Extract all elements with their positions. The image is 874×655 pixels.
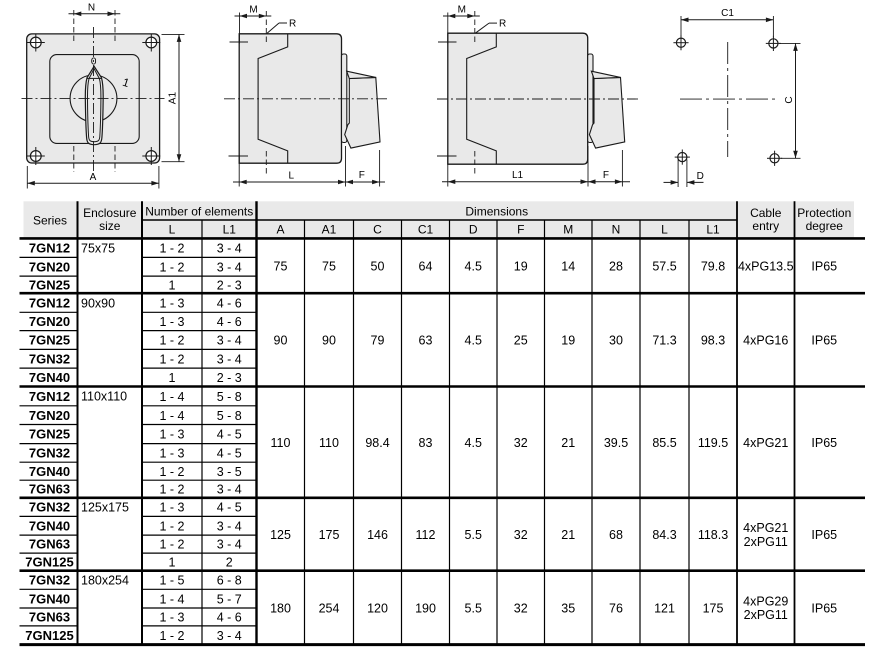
svg-text:A1: A1 [168,92,179,105]
svg-text:7GN20: 7GN20 [29,408,70,423]
svg-text:L: L [289,171,295,182]
svg-text:7GN25: 7GN25 [29,427,70,442]
svg-text:39.5: 39.5 [604,436,628,450]
svg-text:120: 120 [367,601,388,615]
svg-text:1 - 3: 1 - 3 [159,447,184,461]
svg-text:1 - 2: 1 - 2 [159,260,184,274]
svg-text:size: size [99,219,121,233]
svg-text:3 - 4: 3 - 4 [217,483,242,497]
svg-text:7GN40: 7GN40 [29,464,70,479]
svg-text:1: 1 [169,371,176,385]
svg-text:R: R [499,18,506,29]
svg-text:7GN125: 7GN125 [25,628,73,643]
svg-text:32: 32 [514,528,528,542]
svg-text:7GN12: 7GN12 [29,389,70,404]
svg-text:1 - 2: 1 - 2 [159,352,184,366]
svg-text:5 - 8: 5 - 8 [217,390,242,404]
svg-text:IP65: IP65 [811,528,837,542]
svg-text:L1: L1 [512,170,524,181]
svg-text:83: 83 [419,436,433,450]
svg-text:7GN40: 7GN40 [29,518,70,533]
svg-text:5 - 8: 5 - 8 [217,409,242,423]
svg-text:5.5: 5.5 [465,528,482,542]
svg-text:75x75: 75x75 [81,241,115,255]
svg-text:4 - 6: 4 - 6 [217,611,242,625]
svg-text:1 - 2: 1 - 2 [159,538,184,552]
svg-text:90x90: 90x90 [81,296,115,310]
svg-text:190: 190 [415,601,436,615]
svg-text:4xPG21: 4xPG21 [743,436,788,450]
svg-text:35: 35 [561,601,575,615]
svg-text:A: A [90,172,97,183]
svg-text:90: 90 [274,333,288,347]
svg-text:7GN32: 7GN32 [29,446,70,461]
svg-text:50: 50 [371,259,385,273]
svg-text:IP65: IP65 [811,333,837,347]
svg-text:4.5: 4.5 [465,333,482,347]
svg-text:L: L [661,223,668,237]
svg-text:1 - 3: 1 - 3 [159,315,184,329]
svg-text:146: 146 [367,528,388,542]
svg-text:C1: C1 [418,223,434,237]
svg-text:90: 90 [322,333,336,347]
svg-text:118.3: 118.3 [698,528,728,542]
svg-text:5 - 7: 5 - 7 [217,592,242,606]
svg-text:3 - 4: 3 - 4 [217,352,242,366]
svg-text:1: 1 [169,556,176,570]
svg-text:2xPG11: 2xPG11 [744,608,788,622]
svg-text:F: F [359,170,365,181]
svg-text:2: 2 [226,556,233,570]
svg-text:1 - 3: 1 - 3 [159,296,184,310]
svg-text:7GN63: 7GN63 [29,610,70,625]
svg-text:4xPG29: 4xPG29 [743,594,788,608]
svg-text:7GN25: 7GN25 [29,333,70,348]
svg-text:98.4: 98.4 [365,436,389,450]
svg-text:D: D [697,171,704,182]
svg-text:21: 21 [561,436,575,450]
svg-text:28: 28 [609,259,623,273]
svg-text:1 - 2: 1 - 2 [159,465,184,479]
svg-text:76: 76 [609,601,623,615]
svg-text:4 - 5: 4 - 5 [217,428,242,442]
svg-text:Cable: Cable [750,206,782,220]
svg-text:2xPG11: 2xPG11 [744,535,788,549]
svg-text:98.3: 98.3 [701,333,725,347]
svg-text:3 - 4: 3 - 4 [217,334,242,348]
svg-text:112: 112 [416,528,436,542]
svg-text:7GN40: 7GN40 [29,370,70,385]
svg-text:Dimensions: Dimensions [465,205,528,219]
svg-text:4xPG13.5: 4xPG13.5 [738,259,794,273]
svg-text:1 - 2: 1 - 2 [159,334,184,348]
svg-text:1 - 5: 1 - 5 [159,574,184,588]
svg-text:L1: L1 [223,223,237,237]
svg-text:14: 14 [561,259,575,273]
svg-text:D: D [469,223,478,237]
svg-text:19: 19 [561,333,575,347]
svg-text:125: 125 [270,528,291,542]
svg-text:79: 79 [371,333,385,347]
svg-text:2 - 3: 2 - 3 [217,278,242,292]
svg-text:6 - 8: 6 - 8 [217,574,242,588]
svg-text:1 - 2: 1 - 2 [159,242,184,256]
svg-text:7GN20: 7GN20 [29,259,70,274]
svg-text:21: 21 [561,528,575,542]
svg-text:1 - 2: 1 - 2 [159,519,184,533]
svg-text:IP65: IP65 [811,259,837,273]
svg-text:7GN125: 7GN125 [25,555,73,570]
svg-text:degree: degree [806,219,844,233]
svg-text:4xPG21: 4xPG21 [743,521,788,535]
svg-text:180x254: 180x254 [81,574,129,588]
svg-text:3 - 4: 3 - 4 [217,538,242,552]
svg-text:4 - 5: 4 - 5 [217,501,242,515]
svg-text:110: 110 [319,436,339,450]
svg-text:119.5: 119.5 [698,436,728,450]
svg-text:79.8: 79.8 [701,259,725,273]
svg-text:L: L [169,223,176,237]
svg-text:M: M [249,5,257,16]
svg-text:R: R [289,18,296,29]
svg-text:57.5: 57.5 [652,259,676,273]
svg-text:C1: C1 [721,8,734,19]
svg-text:7GN63: 7GN63 [29,537,70,552]
svg-text:7GN63: 7GN63 [29,482,70,497]
svg-text:F: F [603,170,609,181]
svg-text:25: 25 [514,333,528,347]
svg-text:85.5: 85.5 [652,436,676,450]
svg-text:64: 64 [419,259,433,273]
svg-text:4.5: 4.5 [465,259,482,273]
svg-text:7GN32: 7GN32 [29,351,70,366]
svg-text:Series: Series [33,214,67,228]
svg-text:C: C [373,223,382,237]
svg-text:7GN32: 7GN32 [29,573,70,588]
svg-text:N: N [612,223,621,237]
svg-text:110x110: 110x110 [81,390,127,404]
svg-text:175: 175 [703,601,724,615]
svg-text:4 - 6: 4 - 6 [217,296,242,310]
svg-text:7GN12: 7GN12 [29,241,70,256]
svg-text:Protection: Protection [797,206,851,220]
svg-text:2 - 3: 2 - 3 [217,371,242,385]
svg-text:30: 30 [609,333,623,347]
svg-text:1 - 3: 1 - 3 [159,501,184,515]
svg-text:4 - 6: 4 - 6 [217,315,242,329]
svg-text:84.3: 84.3 [652,528,676,542]
svg-text:254: 254 [319,601,340,615]
svg-text:175: 175 [319,528,340,542]
svg-text:F: F [517,223,524,237]
svg-text:IP65: IP65 [811,436,837,450]
svg-text:1 - 3: 1 - 3 [159,428,184,442]
svg-text:M: M [563,223,573,237]
svg-text:5.5: 5.5 [465,601,482,615]
svg-text:75: 75 [274,259,288,273]
svg-text:121: 121 [654,601,675,615]
svg-text:7GN12: 7GN12 [29,295,70,310]
svg-text:3 - 4: 3 - 4 [217,629,242,643]
svg-text:L1: L1 [706,223,720,237]
svg-text:3 - 4: 3 - 4 [217,260,242,274]
svg-text:68: 68 [609,528,623,542]
svg-text:1: 1 [169,278,176,292]
svg-text:1 - 2: 1 - 2 [159,483,184,497]
svg-text:7GN40: 7GN40 [29,591,70,606]
svg-text:32: 32 [514,601,528,615]
svg-text:75: 75 [322,259,336,273]
svg-text:3 - 4: 3 - 4 [217,242,242,256]
svg-text:entry: entry [752,219,779,233]
svg-text:1 - 3: 1 - 3 [159,611,184,625]
svg-text:71.3: 71.3 [652,333,676,347]
svg-text:A1: A1 [322,223,337,237]
svg-text:19: 19 [514,259,528,273]
svg-text:180: 180 [270,601,291,615]
svg-text:C: C [784,96,795,103]
svg-text:7GN32: 7GN32 [29,500,70,515]
svg-text:32: 32 [514,436,528,450]
svg-text:125x175: 125x175 [81,501,129,515]
svg-text:7GN25: 7GN25 [29,277,70,292]
svg-text:M: M [458,5,466,16]
svg-text:Enclosure: Enclosure [83,206,137,220]
svg-text:1 - 4: 1 - 4 [159,409,184,423]
svg-text:N: N [88,3,95,14]
svg-text:110: 110 [271,436,291,450]
svg-text:3 - 4: 3 - 4 [217,519,242,533]
svg-text:7GN20: 7GN20 [29,314,70,329]
svg-text:IP65: IP65 [811,601,837,615]
svg-text:Number of elements: Number of elements [145,205,253,219]
svg-text:1 - 2: 1 - 2 [159,629,184,643]
svg-text:4 - 5: 4 - 5 [217,447,242,461]
svg-text:63: 63 [419,333,433,347]
svg-text:3 - 5: 3 - 5 [217,465,242,479]
svg-text:A: A [276,223,284,237]
svg-text:4.5: 4.5 [465,436,482,450]
svg-text:1 - 4: 1 - 4 [159,592,184,606]
svg-text:4xPG16: 4xPG16 [743,333,788,347]
svg-text:1 - 4: 1 - 4 [159,390,184,404]
